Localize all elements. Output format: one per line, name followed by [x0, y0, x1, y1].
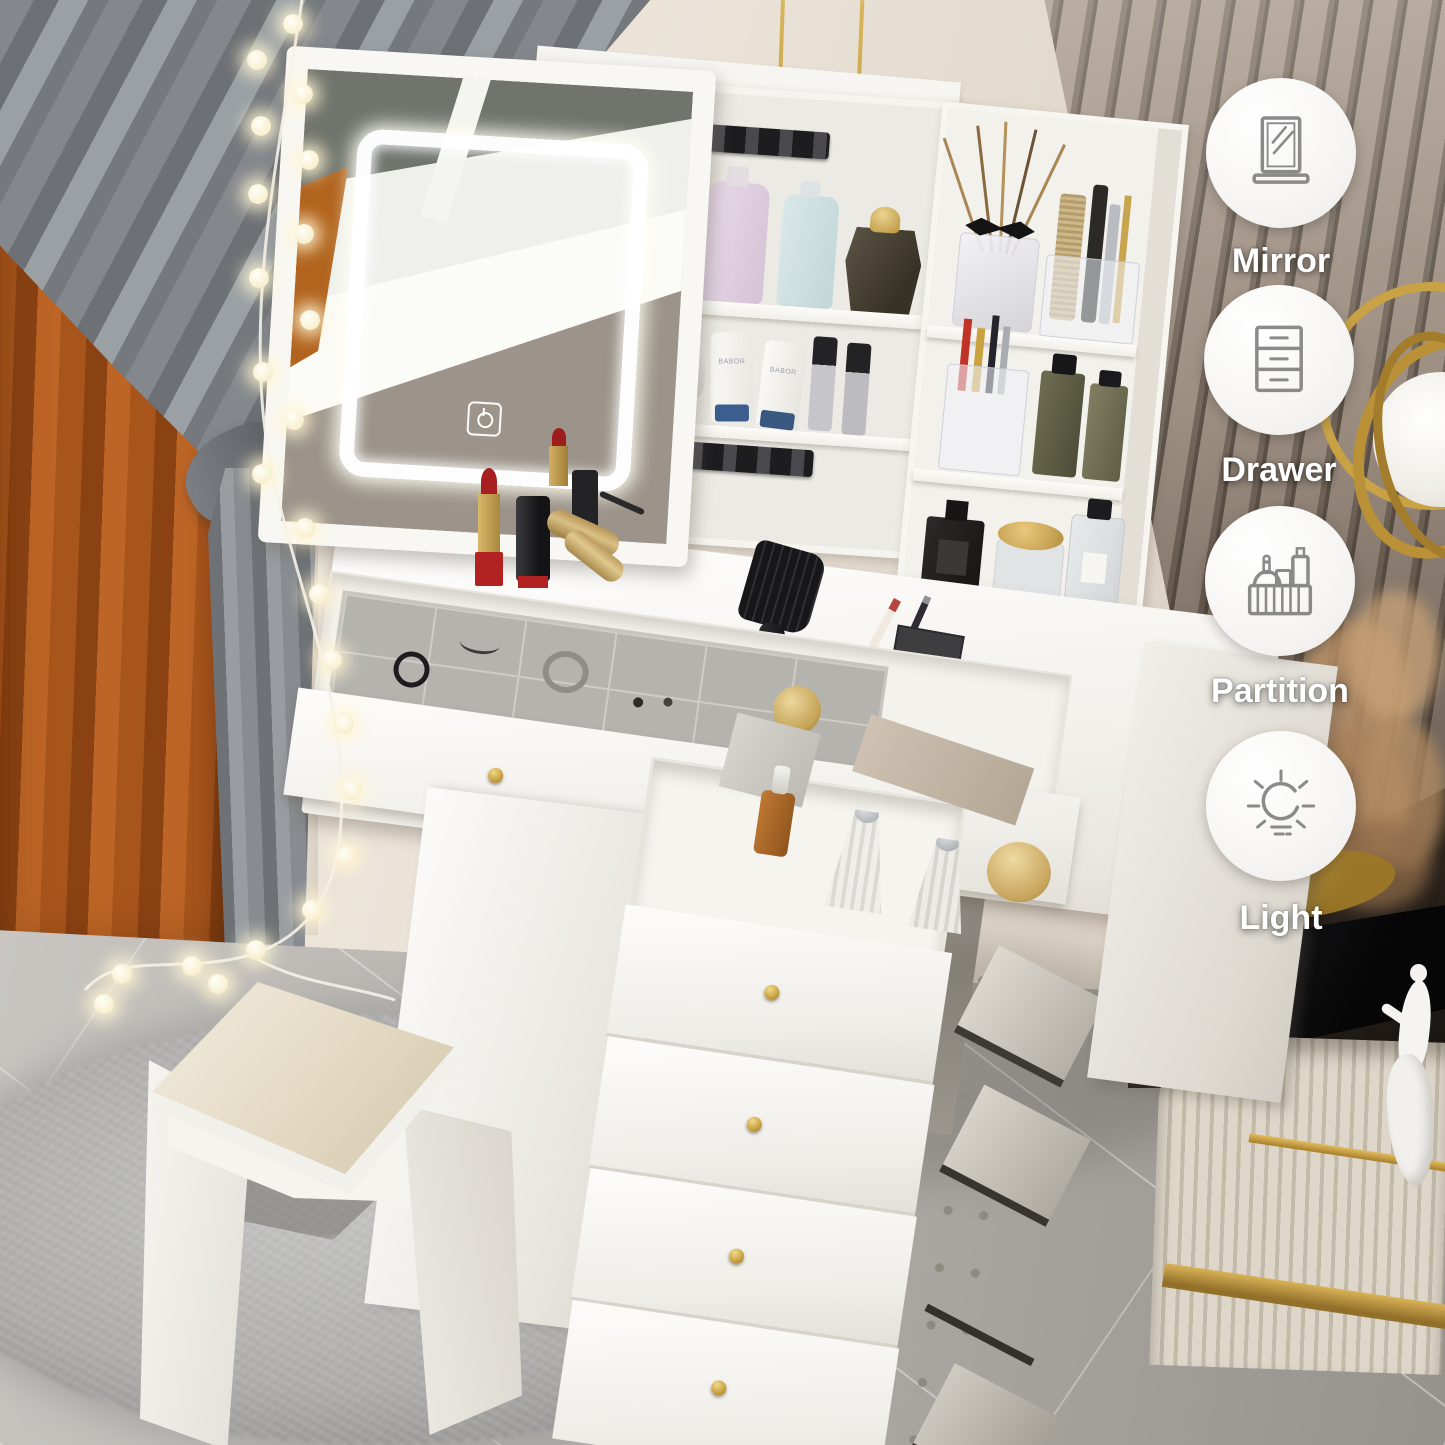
drawer-knob — [763, 984, 780, 1001]
mirror-icon — [1239, 111, 1323, 195]
earring — [633, 697, 644, 708]
gold-jar — [983, 838, 1055, 907]
drawer-icon — [1237, 318, 1321, 402]
string-light-bulb — [300, 310, 320, 330]
acrylic-organizer — [938, 335, 1030, 474]
badge-circle — [1204, 285, 1354, 435]
lipstick-gold-body — [549, 446, 568, 486]
blue-bottle — [776, 194, 840, 310]
olive-bottle — [1032, 370, 1086, 478]
string-light-bulb — [336, 846, 356, 866]
badge-label: Light — [1161, 899, 1401, 938]
drawer-knob — [710, 1379, 727, 1396]
string-light-bulb — [309, 584, 329, 604]
string-light-bulb — [299, 150, 319, 170]
feature-badge-light: Light — [1206, 731, 1445, 938]
string-light-bulb — [247, 50, 267, 70]
drawer-knob — [728, 1248, 745, 1265]
earring — [663, 697, 673, 707]
string-lights-cord — [0, 0, 500, 1050]
string-light-bulb — [322, 650, 342, 670]
black-cosmetic-cylinder — [516, 496, 550, 582]
pink-bottle-cap — [726, 166, 749, 187]
string-light-bulb — [246, 940, 266, 960]
string-light-bulb — [284, 410, 304, 430]
string-light-bulb — [294, 224, 314, 244]
badge-label: Partition — [1160, 672, 1400, 711]
string-light-bulb — [251, 116, 271, 136]
drawer-knob — [746, 1116, 763, 1133]
string-light-bulb — [302, 900, 322, 920]
badge-label: Drawer — [1159, 451, 1399, 490]
perfume-gold-cap — [869, 206, 901, 234]
badge-label: Mirror — [1161, 242, 1401, 281]
string-light-bulb — [112, 964, 132, 984]
string-light-bulb — [295, 518, 315, 538]
right-drawer-stack — [546, 756, 1118, 1445]
badge-circle — [1206, 78, 1356, 228]
string-light-bulb — [293, 84, 313, 104]
feature-badge-drawer: Drawer — [1204, 285, 1444, 490]
cosmetic-tube: BABOR — [711, 332, 753, 422]
tube-brand-label: BABOR — [762, 366, 805, 378]
bracelet — [540, 648, 591, 696]
string-light-bulb — [252, 464, 272, 484]
reed-diffuser — [944, 139, 1051, 332]
string-light-bulb — [248, 184, 268, 204]
cylinder-red-base — [518, 576, 548, 588]
mascara-tube — [807, 336, 837, 431]
light-icon — [1239, 764, 1323, 848]
perfume-decanter — [842, 226, 924, 317]
pink-bottle — [700, 180, 770, 304]
tube-brand-label: BABOR — [711, 358, 753, 365]
string-light-bulb — [182, 956, 202, 976]
string-light-bulb — [283, 14, 303, 34]
string-light-bulb — [334, 714, 354, 734]
cosmetic-tube: BABOR — [755, 340, 807, 432]
blue-bottle-cap — [800, 181, 821, 198]
string-light-bulb — [342, 780, 362, 800]
string-light-bulb — [208, 974, 228, 994]
badge-circle — [1205, 506, 1355, 656]
string-light-bulb — [249, 268, 269, 288]
partition-icon — [1238, 539, 1322, 623]
string-light-bulb — [94, 994, 114, 1014]
product-photo-vanity-set: BABOR BABOR — [0, 0, 1445, 1445]
brush-cup — [1039, 180, 1145, 343]
feature-badge-partition: Partition — [1205, 506, 1445, 711]
badge-circle — [1206, 731, 1356, 881]
olive-bottle — [1081, 383, 1128, 482]
string-light-bulb — [253, 362, 273, 382]
feature-badge-mirror: Mirror — [1206, 78, 1445, 281]
white-figurine — [1382, 958, 1445, 1198]
mascara-tube — [841, 342, 871, 435]
lipstick-bullet — [552, 428, 566, 448]
